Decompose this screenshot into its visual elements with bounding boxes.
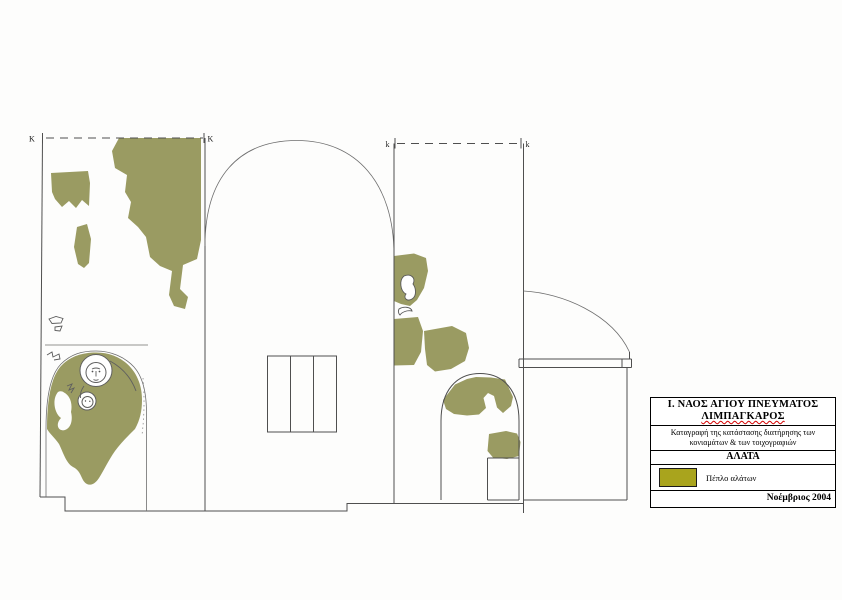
small-damage-outline-2 xyxy=(55,326,62,331)
small-damage-outline-3 xyxy=(47,352,60,360)
fresco-child-eye-left xyxy=(85,400,86,401)
legend-label: Πέπλο αλάτων xyxy=(706,473,756,483)
salt-blob-right-wall-2 xyxy=(394,317,423,366)
left-wall-bottom xyxy=(40,497,523,511)
fresco-child-face xyxy=(82,397,93,408)
salt-blob-small-arch xyxy=(443,377,513,416)
fresco-eye-left xyxy=(92,371,94,373)
section-marker-left-end: K xyxy=(208,135,214,144)
crack-outline xyxy=(398,307,412,315)
title-block: Ι. ΝΑΟΣ ΑΓΙΟΥ ΠΝΕΥΜΑΤΟΣ ΛΙΜΠΑΓΚΑΡΟΣ Κατα… xyxy=(650,397,836,508)
drawing-date: Νοέμβριος 2004 xyxy=(651,490,835,507)
salt-blob-left-wall-large xyxy=(112,138,201,309)
description-row: Καταγραφή της κατάστασης διατήρησης των … xyxy=(651,425,835,450)
section-label: ΑΛΑΤΑ xyxy=(651,450,835,464)
legend-swatch xyxy=(659,468,697,487)
legend-row: Πέπλο αλάτων xyxy=(651,464,835,490)
section-marker-left-start: K xyxy=(29,135,35,144)
section-marker-right-start: k xyxy=(386,140,390,149)
drawing-title: Ι. ΝΑΟΣ ΑΓΙΟΥ ΠΝΕΥΜΑΤΟΣ xyxy=(651,399,835,411)
description-line-1: Καταγραφή της κατάστασης διατήρησης των xyxy=(652,428,834,438)
salt-blob-right-wall-3 xyxy=(424,326,469,372)
salt-damage-areas xyxy=(47,138,521,485)
left-wall-left-edge xyxy=(40,138,43,497)
salt-blob-left-wall-vertical xyxy=(74,224,91,268)
apse-arc xyxy=(524,291,630,352)
salt-blob-door xyxy=(488,431,521,459)
window xyxy=(268,356,337,432)
title-row: Ι. ΝΑΟΣ ΑΓΙΟΥ ΠΝΕΥΜΑΤΟΣ ΛΙΜΠΑΓΚΑΡΟΣ xyxy=(651,398,835,425)
description-line-2: κονιαμάτων & των τοιχογραφιών xyxy=(652,438,834,448)
salt-blob-left-wall-small xyxy=(51,171,90,208)
page: K K k k Ι. ΝΑΟΣ ΑΓΙΟΥ ΠΝΕΥΜΑΤΟΣ ΛΙΜΠΑΓΚΑ… xyxy=(0,0,842,595)
fresco-eye-right xyxy=(99,371,101,373)
section-marker-right-end: k xyxy=(526,140,530,149)
apse-cornice xyxy=(519,352,632,368)
section-ticks xyxy=(43,133,522,149)
vault-arch xyxy=(205,141,394,256)
door-panel xyxy=(488,458,520,500)
drawing-subtitle: ΛΙΜΠΑΓΚΑΡΟΣ xyxy=(651,411,835,423)
small-damage-outline-1 xyxy=(49,317,63,324)
fresco-child-eye-right xyxy=(89,401,90,402)
